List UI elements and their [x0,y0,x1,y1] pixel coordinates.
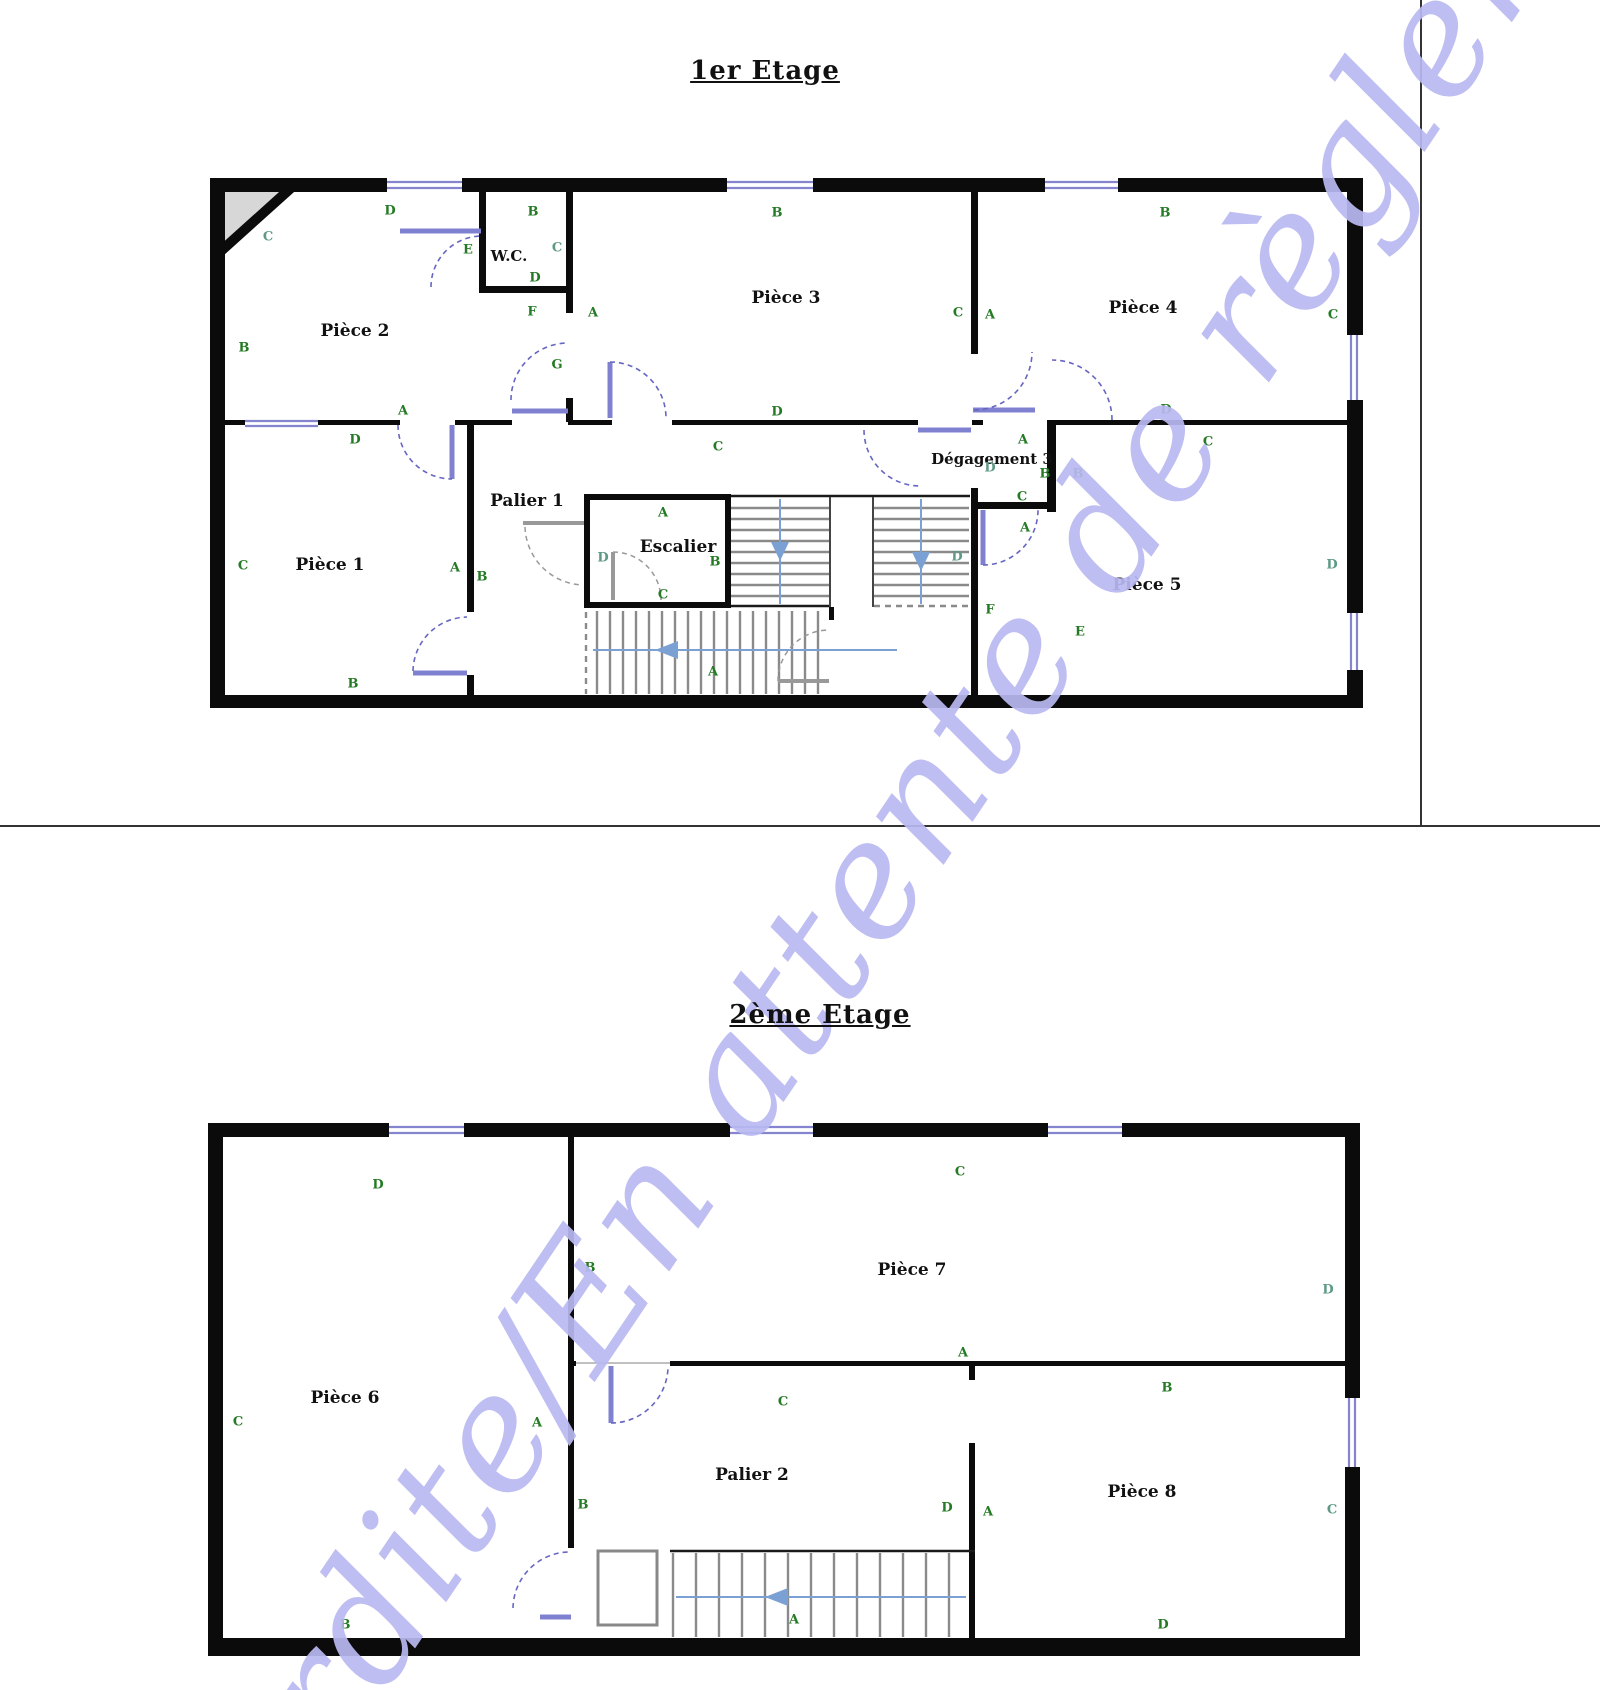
door-piece2 [511,343,568,411]
door-palier2 [611,1366,668,1423]
door-piece1-top [398,425,452,479]
door-wc [400,231,482,287]
door-piece3 [610,362,666,418]
floor2-windows [389,1127,1355,1467]
door-palier1 [523,523,584,585]
floor2-exterior-walls [208,1123,1360,1656]
floor1-stairs-icon [586,496,970,694]
door-piece4 [1052,360,1112,420]
door-degagement-left [864,430,971,486]
floor1-plan [210,178,1363,708]
floorplan-drawing [0,0,1600,1690]
hatch-box [598,1551,657,1625]
floor2-stairs-icon [673,1553,966,1637]
floor1-doors [398,231,1112,681]
floor2-plan [208,1123,1360,1656]
floor2-interior-walls [568,1137,1360,1638]
door-degagement-bottom [983,510,1038,565]
floor1-title: 1er Etage [690,56,840,86]
door-piece6 [513,1552,571,1617]
floor1-exterior-walls [210,178,1363,708]
floor2-title: 2ème Etage [729,1000,910,1030]
door-understairs [778,630,829,681]
floor1-interior-walls [225,192,1347,697]
floor2-doors [513,1366,668,1617]
floorplan-page: 1er Etage 2ème Etage Pièce 2W.C.Pièce 3P… [0,0,1600,1690]
door-piece3-divider [974,352,1032,410]
door-piece1-bottom [413,617,467,673]
door-escalier [613,552,661,600]
